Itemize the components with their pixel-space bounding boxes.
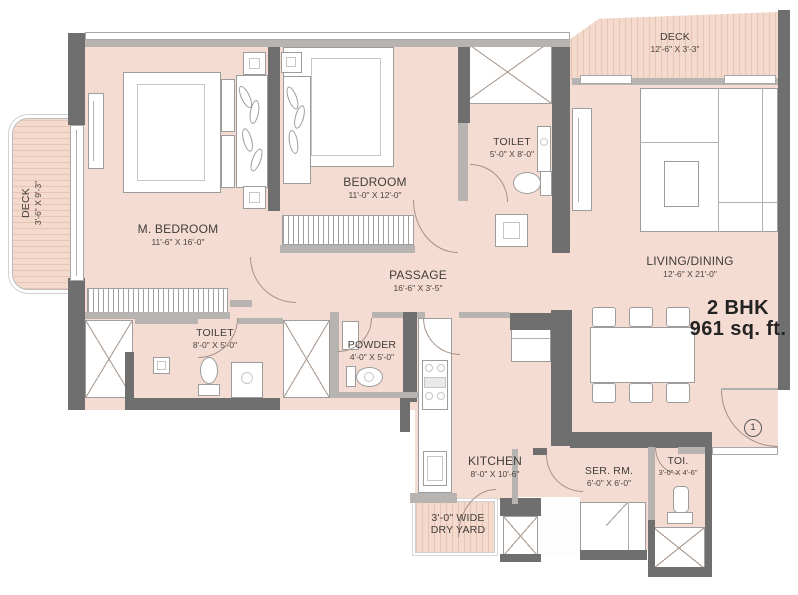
mbr-side-table-inner [249, 58, 260, 69]
entrance-sill [712, 447, 778, 455]
room-label-kitchen: KITCHEN 8'-0" X 10'-6" [435, 454, 555, 479]
wall-light [459, 312, 510, 318]
wall-segment [570, 432, 712, 448]
wall-segment [268, 33, 280, 211]
toilet-top-wc-bowl [513, 172, 541, 194]
plan-summary: 2 BHK 961 sq. ft. [673, 298, 798, 340]
mbr-pillow [221, 135, 235, 188]
toi-wc-bowl [673, 486, 689, 513]
window-living-top [580, 75, 632, 84]
dining-chair [629, 307, 653, 327]
room-dims: 3'-6" X 9'-3" [33, 147, 43, 259]
stove-burner [437, 364, 445, 372]
room-dims: 3'-0" X 4'-6" [618, 468, 738, 477]
window-deck-left-line [76, 130, 77, 276]
room-name: TOILET [452, 136, 572, 148]
room-dims: 6'-0" X 6'-0" [549, 478, 669, 488]
floor-plan: DECK 3'-6" X 9'-3" M. BEDROOM 11'-6" X 1… [0, 0, 798, 595]
room-name: DECK [605, 31, 745, 43]
mbr-wardrobe [87, 288, 228, 313]
dry-yard-ledge [410, 493, 457, 503]
room-name: BEDROOM [295, 175, 455, 189]
room-label-m-bedroom: M. BEDROOM 11'-6" X 16'-0" [98, 222, 258, 247]
toilet-bottom-wc-tank [198, 384, 220, 396]
coffee-table [664, 161, 699, 207]
room-dims: 12'-6" X 21'-0" [610, 269, 770, 279]
room-label-deck-left: DECK 3'-6" X 9'-3" [20, 147, 56, 259]
powder-wc-inner [364, 372, 374, 382]
dining-chair [592, 383, 616, 403]
stove-burner [425, 392, 433, 400]
wall-segment [500, 554, 541, 562]
room-label-bedroom: BEDROOM 11'-0" X 12'-0" [295, 175, 455, 200]
wall-light [230, 300, 252, 307]
window-band-top [85, 32, 570, 40]
wall-segment [400, 397, 410, 432]
room-label-toilet-top: TOILET 5'-0" X 8'-0" [452, 136, 572, 159]
sofa-line [762, 88, 763, 232]
plan-title: 2 BHK [673, 298, 798, 319]
wall-light [330, 392, 418, 398]
mbr-pillow [221, 79, 235, 132]
room-dims: 8'-0" X 5'-0" [155, 340, 275, 350]
room-label-passage: PASSAGE 16'-6" X 3'-5" [338, 268, 498, 293]
room-name: TOILET [155, 327, 275, 339]
room-label-powder: POWDER 4'-0" X 5'-0" [312, 339, 432, 362]
room-dims: 16'-6" X 3'-5" [338, 283, 498, 293]
room-name: TOI. [618, 455, 738, 467]
mbr-bed-blanket [137, 84, 205, 181]
wall-light [135, 318, 198, 324]
stove-burner [425, 364, 433, 372]
toi-wc-tank [667, 512, 693, 524]
plan-area: 961 sq. ft. [673, 319, 798, 340]
mbr-tv-unit [88, 93, 104, 169]
window-deck-left [70, 125, 84, 281]
shaft-top [463, 40, 552, 104]
room-dims: 5'-0" X 8'-0" [452, 149, 572, 159]
toilet-bottom-fixture-inner [157, 361, 166, 370]
powder-wc-tank [346, 366, 356, 387]
dining-chair [592, 307, 616, 327]
room-dims: 11'-6" X 16'-0" [98, 237, 258, 247]
room-name: DECK [20, 147, 32, 259]
room-name: 3'-0" WIDE [398, 512, 518, 524]
room-dims: DRY YARD [398, 524, 518, 536]
room-name: LIVING/DINING [610, 254, 770, 268]
mbr-tv-line [93, 101, 94, 161]
wall-segment [510, 313, 553, 330]
wall-segment [580, 550, 647, 560]
wall-segment [125, 398, 280, 410]
br2-side-table-inner [286, 57, 296, 67]
wall-light [85, 40, 570, 47]
room-label-deck-top: DECK 12'-6" X 3'-3" [605, 31, 745, 54]
stove-tray [424, 377, 446, 388]
wall-light [678, 447, 705, 454]
entrance-door-leaf [721, 388, 778, 390]
room-dims: 12'-6" X 3'-3" [605, 44, 745, 54]
wall-segment [68, 33, 85, 125]
sofa-line [718, 88, 719, 232]
serrm-bed-fold [606, 502, 628, 526]
room-name: PASSAGE [338, 268, 498, 282]
living-tv-line [578, 118, 579, 202]
shaft-toi [653, 527, 705, 569]
room-label-toilet-bottom: TOILET 8'-0" X 5'-0" [155, 327, 275, 350]
serrm-bed-line [628, 502, 629, 551]
toilet-bottom-basin-inner [241, 372, 253, 384]
room-label-toi: TOI. 3'-0" X 4'-6" [618, 455, 738, 477]
wall-light [372, 312, 403, 318]
wall-segment [68, 278, 85, 410]
toilet-bottom-wc-bowl [200, 357, 218, 384]
sofa-line [640, 142, 719, 143]
wall-segment [551, 310, 572, 446]
room-dims: 11'-0" X 12'-0" [295, 190, 455, 200]
room-name: M. BEDROOM [98, 222, 258, 236]
mbr-side-table-inner [249, 192, 260, 203]
br2-bed-blanket [311, 58, 381, 156]
room-label-living-dining: LIVING/DINING 12'-6" X 21'-0" [610, 254, 770, 279]
room-dims: 8'-0" X 10'-6" [435, 469, 555, 479]
wall-light [280, 245, 415, 253]
sofa-line [718, 202, 778, 203]
room-name: KITCHEN [435, 454, 555, 468]
window-living-top [724, 75, 776, 84]
dining-chair [666, 383, 690, 403]
kitchen-fridge-line [511, 338, 551, 339]
room-name: POWDER [312, 339, 432, 351]
stove-burner [437, 392, 445, 400]
dining-chair [629, 383, 653, 403]
living-tv-unit [572, 108, 592, 211]
entrance-marker: 1 [744, 419, 762, 437]
wall-segment [648, 567, 712, 577]
toilet-top-shower-inner [503, 222, 520, 239]
room-label-dry-yard: 3'-0" WIDE DRY YARD [398, 512, 518, 536]
toilet-top-wc-tank [540, 171, 552, 196]
room-dims: 4'-0" X 5'-0" [312, 352, 432, 362]
br2-wardrobe [282, 215, 414, 245]
sofa [640, 88, 778, 232]
wall-light [458, 123, 468, 201]
wall-light [238, 318, 283, 324]
